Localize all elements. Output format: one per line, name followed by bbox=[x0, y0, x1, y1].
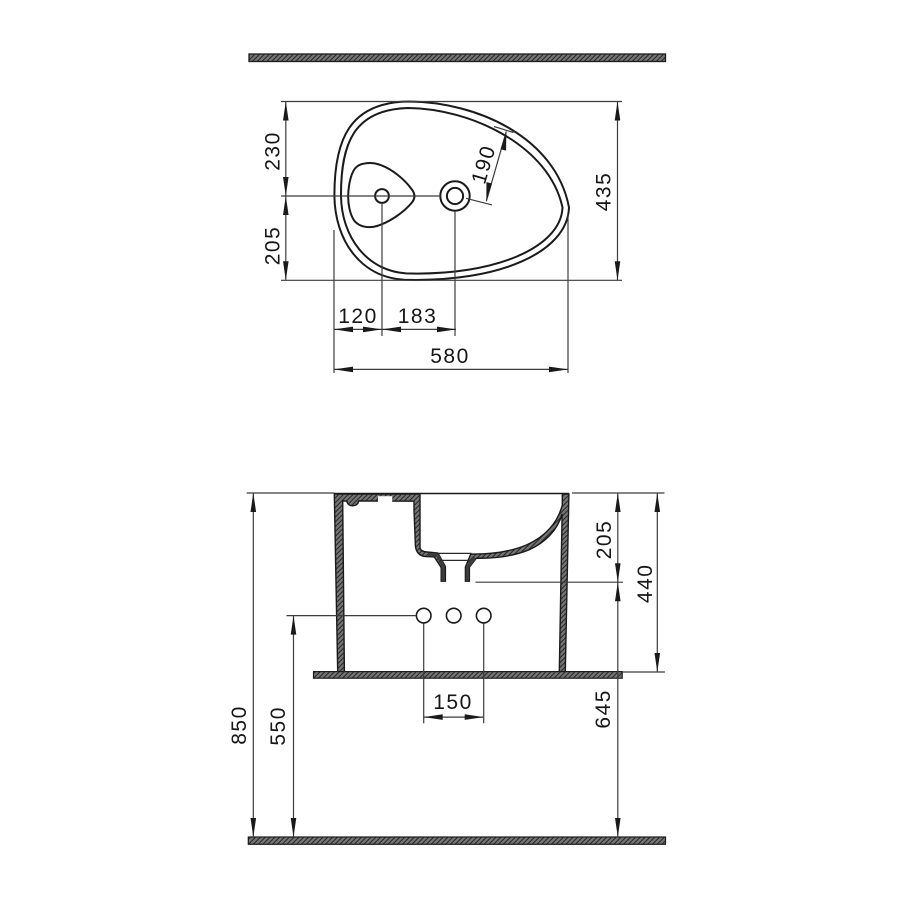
svg-text:645: 645 bbox=[592, 689, 615, 729]
svg-text:230: 230 bbox=[262, 131, 285, 171]
svg-text:440: 440 bbox=[634, 564, 657, 604]
svg-text:205: 205 bbox=[262, 226, 285, 266]
svg-text:120: 120 bbox=[338, 305, 378, 328]
svg-text:205: 205 bbox=[593, 520, 616, 560]
svg-text:183: 183 bbox=[398, 305, 438, 328]
svg-text:190: 190 bbox=[467, 142, 500, 186]
svg-text:580: 580 bbox=[430, 345, 470, 368]
svg-text:150: 150 bbox=[433, 691, 473, 714]
svg-text:550: 550 bbox=[267, 706, 290, 746]
svg-text:435: 435 bbox=[592, 172, 615, 212]
svg-text:850: 850 bbox=[228, 705, 251, 745]
